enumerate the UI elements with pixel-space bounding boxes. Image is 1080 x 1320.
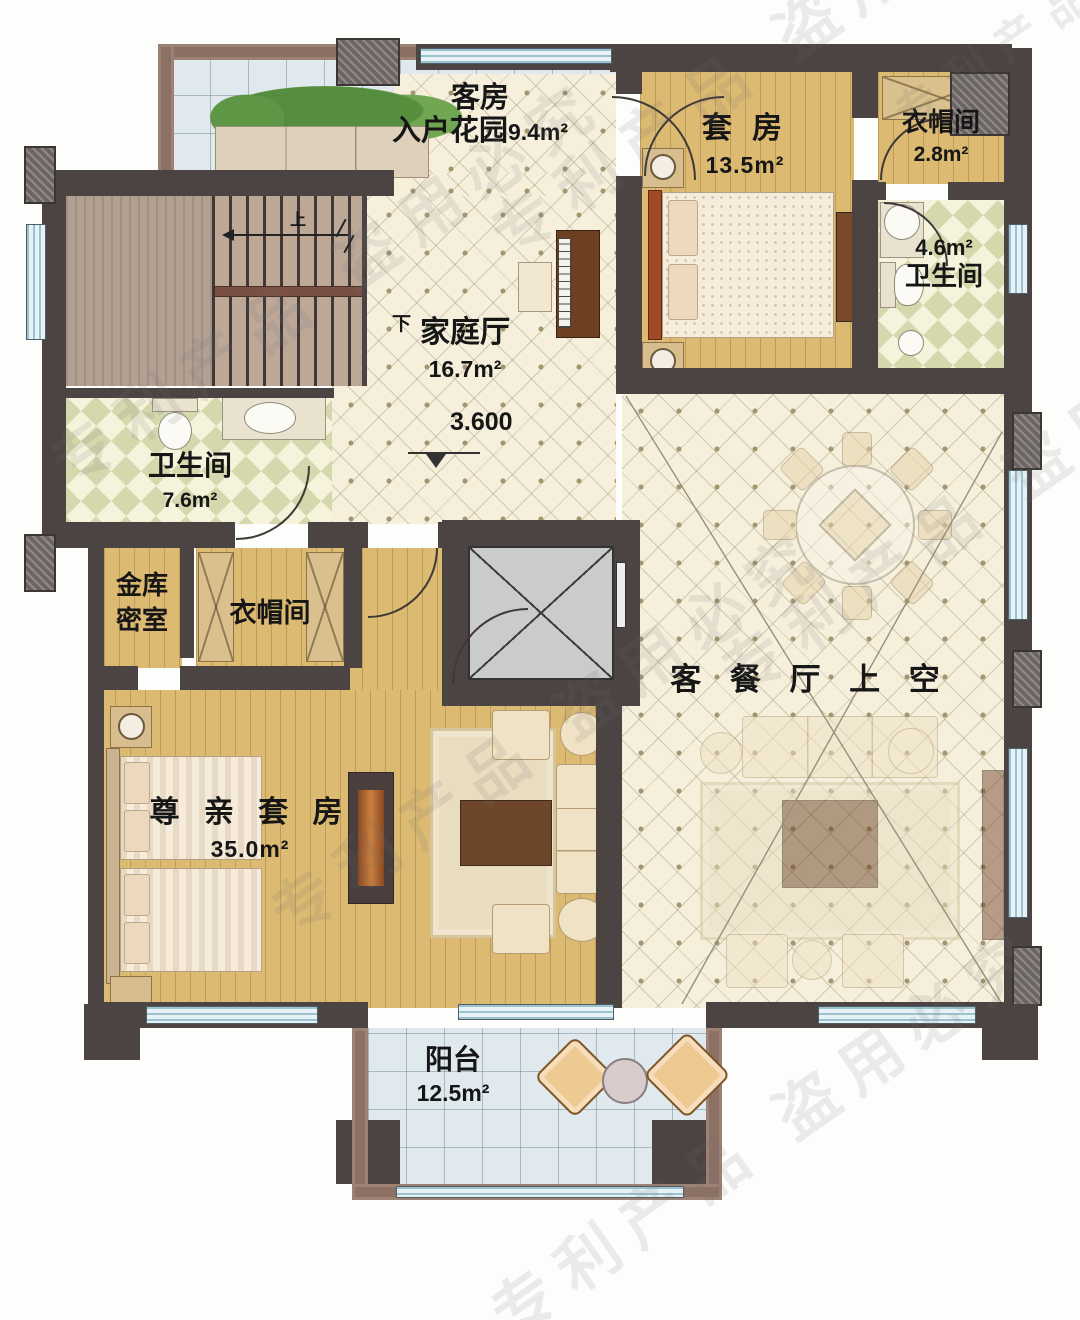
- window-void-right-2: [1008, 748, 1028, 918]
- wall-stair-bath-divider: [42, 388, 334, 398]
- label-vault: 金库 密室: [100, 568, 184, 638]
- balcony-sliding-door: [458, 1004, 614, 1020]
- balcony-table: [602, 1058, 648, 1104]
- entry-garden-line2: 入户花园: [392, 115, 508, 147]
- wall-garden-bottom: [42, 170, 394, 196]
- elder-pillow-2: [124, 874, 150, 916]
- wall-suite-left-a: [616, 48, 642, 94]
- label-stair-up: 上: [290, 212, 306, 230]
- label-bath-left: 卫生间 7.6m²: [110, 450, 270, 514]
- wall-top-suite: [610, 44, 1012, 72]
- label-entry-garden: 客房 入户花园9.4m²: [360, 82, 600, 149]
- balcony-parapet-left: [352, 1028, 368, 1188]
- garden-parapet-left: [158, 44, 174, 176]
- column-left-1: [24, 146, 56, 204]
- label-suite: 套 房 13.5m²: [660, 112, 830, 181]
- wall-hall-bottom-b: [308, 522, 368, 548]
- level-symbol-triangle: [426, 454, 446, 468]
- window-void-right-1: [1008, 470, 1028, 620]
- stair-arrow-line: [232, 234, 348, 236]
- label-bath-right: 4.6m² 卫生间: [874, 232, 1014, 292]
- elder-pillow-2b: [124, 922, 150, 964]
- window-void-bottom: [818, 1006, 976, 1024]
- window-stair-left: [26, 224, 46, 340]
- elder-lamp-1: [118, 713, 145, 740]
- elevator-door-slot: [616, 562, 626, 628]
- bath-left-toilet-tank: [152, 398, 198, 412]
- wall-hall-bottom-c: [438, 522, 464, 548]
- label-stair-down: 下: [392, 314, 411, 336]
- entry-garden-area: 9.4m²: [508, 119, 568, 145]
- column-left-2: [24, 534, 56, 592]
- bath-right-shower-drain: [898, 330, 924, 356]
- bath-left-toilet: [158, 412, 192, 450]
- window-balcony-bottom: [396, 1186, 684, 1198]
- void-cross-lines: [622, 392, 1006, 1008]
- elder-armchair-top: [492, 710, 550, 760]
- pier-balcony-left: [336, 1120, 400, 1184]
- suite-headboard: [648, 190, 662, 340]
- elder-armchair-bottom: [492, 904, 550, 954]
- wall-elder-top-a: [88, 666, 138, 690]
- wall-hall-bottom-a: [42, 522, 235, 548]
- column-right-2: [1012, 650, 1042, 708]
- entry-garden-line1: 客房: [451, 82, 509, 114]
- elder-headboard: [106, 748, 120, 984]
- label-elder-suite: 尊 亲 套 房 35.0m²: [120, 796, 380, 865]
- wall-cloak-bath-divider-a: [852, 182, 886, 200]
- piano-keys: [558, 238, 571, 328]
- elder-coffee-table: [460, 800, 552, 866]
- pier-bottom-right: [982, 1004, 1038, 1060]
- column-right-1: [1012, 412, 1042, 470]
- floor-plan: 客房 入户花园9.4m² 套 房 13.5m² 衣帽间 2.8m² 4.6m² …: [0, 0, 1080, 1320]
- label-level: 3.600: [450, 408, 513, 437]
- stair-arrowhead: [222, 229, 234, 241]
- label-cloak-top: 衣帽间 2.8m²: [874, 108, 1008, 168]
- stair-handrail: [214, 286, 364, 297]
- wall-suite-bottom: [616, 368, 1012, 394]
- suite-pillow-2: [668, 264, 698, 320]
- wall-cloak-right: [344, 548, 362, 668]
- stair-landing: [66, 196, 212, 386]
- pier-bottom-left: [84, 1004, 140, 1060]
- wall-suite-left-b: [616, 176, 642, 392]
- piano-bench: [518, 262, 552, 312]
- window-elder-bottom: [146, 1006, 318, 1024]
- label-balcony: 阳台 12.5m²: [388, 1044, 518, 1108]
- label-void: 客 餐 厅 上 空: [660, 662, 960, 698]
- wall-elder-void-divider: [596, 690, 622, 1008]
- column-right-3: [1012, 946, 1042, 1006]
- suite-pillow-1: [668, 200, 698, 256]
- bath-left-sink: [244, 402, 296, 434]
- column-top-garden: [336, 38, 400, 86]
- stair-stringer: [362, 196, 367, 386]
- window-top-foyer: [420, 48, 612, 64]
- label-cloak-mid: 衣帽间: [196, 598, 344, 629]
- wall-elder-top-b: [180, 666, 350, 690]
- wall-cloak-bath-divider-b: [948, 182, 1006, 200]
